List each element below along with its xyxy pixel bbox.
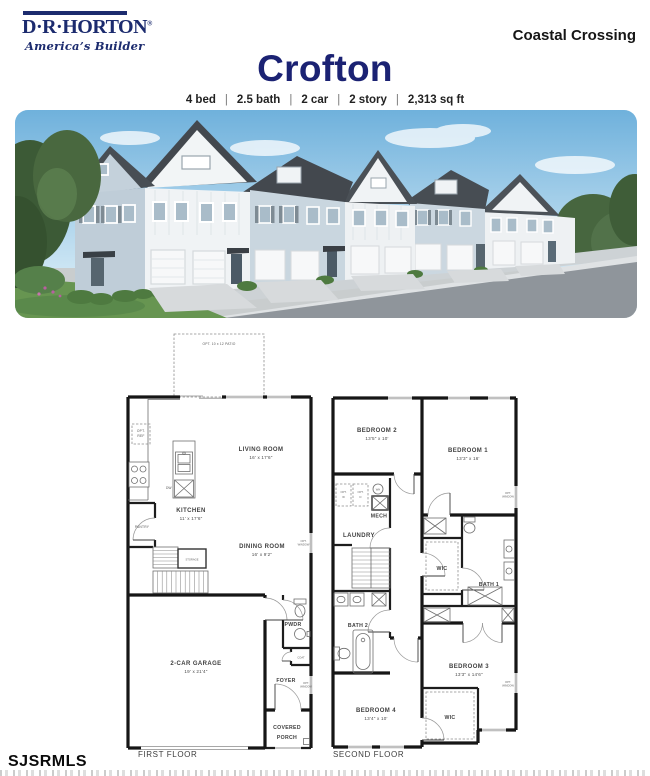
kitchen-island — [173, 441, 195, 498]
mech-label: MECH — [371, 514, 387, 520]
flyer-page: D·R·HORTON® America’s Builder Coastal Cr… — [0, 0, 650, 776]
spec-separator: | — [289, 94, 292, 106]
opt-window-label-foyer: OPT. — [303, 681, 309, 685]
cropped-disclaimer-text — [0, 770, 650, 776]
first-floor-title: FIRST FLOOR — [138, 750, 197, 759]
pwdr-label: PWDR — [284, 622, 301, 628]
exterior-walls — [128, 397, 311, 748]
coat-label: COAT — [297, 656, 305, 660]
mls-watermark: SJSRMLS — [8, 753, 87, 771]
pantry-label: PANTRY — [135, 525, 150, 529]
svg-text:REF: REF — [137, 434, 144, 438]
wic-upper-label: WIC — [437, 566, 448, 572]
rendering-scene — [15, 110, 637, 318]
svg-text:WINDOW: WINDOW — [502, 495, 514, 499]
bedroom1-label: BEDROOM 1 — [448, 448, 488, 454]
garage-label: 2-CAR GARAGE — [170, 661, 221, 667]
svg-text:D: D — [360, 495, 362, 499]
bedroom3-dims: 13'3" x 14'6" — [455, 672, 483, 677]
covered-porch-label: COVERED — [273, 725, 301, 731]
spec-separator: | — [396, 94, 399, 106]
opt-ref-label: OPT. — [137, 429, 145, 433]
bedroom2-dims: 13'5" x 10' — [365, 436, 388, 441]
kitchen-label: KITCHEN — [176, 508, 205, 514]
opt-window-label-bed3: OPT. — [505, 680, 511, 684]
opt-window-label-bed1: OPT. — [505, 491, 511, 495]
bedroom4-label: BEDROOM 4 — [356, 708, 396, 714]
dining-room-label: DINING ROOM — [239, 544, 285, 550]
logo-bar — [23, 11, 127, 15]
drhorton-logo: D·R·HORTON® America’s Builder — [22, 8, 152, 53]
svg-text:W: W — [342, 495, 345, 499]
bath2-label: BATH 2 — [348, 623, 368, 629]
bedroom4-dims: 13'4" x 10' — [364, 716, 387, 721]
spec-cars: 2 car — [301, 94, 328, 106]
stairs-2 — [352, 548, 390, 588]
porch-post — [304, 739, 310, 745]
bedroom3-label: BEDROOM 3 — [449, 664, 489, 670]
spec-stories: 2 story — [349, 94, 387, 106]
stairs: STORAGE — [153, 547, 208, 593]
second-floor-title: SECOND FLOOR — [333, 750, 404, 759]
living-room-dims: 16' x 17'6" — [249, 455, 272, 460]
wic-lower: WIC — [426, 692, 474, 739]
svg-text:WINDOW: WINDOW — [298, 543, 310, 547]
living-room-label: LIVING ROOM — [239, 447, 284, 453]
exterior-walls-2 — [333, 398, 516, 747]
first-floor-plan: OPT. 10 x 12 PATIO OPT. REF — [123, 328, 318, 760]
brand-name: D·R·HORTON — [22, 16, 147, 38]
kitchen-dims: 11' x 17'6" — [180, 516, 203, 521]
opt-washer-label: OPT. — [341, 490, 347, 494]
kitchen-fixtures: OPT. REF DW — [128, 400, 195, 501]
svg-text:WINDOW: WINDOW — [300, 685, 312, 689]
spec-beds: 4 bed — [186, 94, 216, 106]
laundry-label: LAUNDRY — [343, 533, 375, 539]
svg-text:PORCH: PORCH — [277, 735, 297, 741]
plan-title: Crofton — [0, 50, 650, 87]
wic-lower-label: WIC — [445, 715, 456, 721]
second-floor-plan: BEDROOM 2 13'5" x 10' BEDROOM 1 13'3" x … — [328, 388, 520, 760]
dw-label: DW — [166, 486, 172, 490]
powder-room: PWDR — [283, 595, 311, 648]
opt-dryer-label: OPT. — [358, 490, 364, 494]
bedroom2-label: BEDROOM 2 — [357, 428, 397, 434]
garage-dims: 19' x 21'4" — [184, 669, 207, 674]
bath2: BATH 2 — [334, 593, 386, 673]
storage-label: STORAGE — [185, 558, 198, 562]
opt-window-label: OPT. — [301, 539, 307, 543]
spec-separator: | — [225, 94, 228, 106]
pantry: PANTRY — [128, 503, 155, 547]
spec-line: 4 bed | 2.5 bath | 2 car | 2 story | 2,3… — [0, 94, 650, 106]
window-openings-2 — [348, 396, 518, 748]
svg-text:WINDOW: WINDOW — [502, 684, 514, 688]
dining-room-dims: 16' x 9'2" — [252, 552, 273, 557]
coat-closet: COAT — [282, 648, 311, 665]
spec-sqft: 2,313 sq ft — [408, 94, 464, 106]
community-name: Coastal Crossing — [513, 27, 636, 44]
bedroom1-dims: 13'3" x 16' — [456, 456, 479, 461]
spec-separator: | — [337, 94, 340, 106]
exterior-rendering-photo — [15, 110, 637, 318]
interior-walls-2 — [333, 398, 516, 747]
foyer-label: FOYER — [276, 678, 295, 684]
opt-patio-label: OPT. 10 x 12 PATIO — [203, 342, 236, 346]
wh-label: WH — [376, 488, 381, 492]
logo-brand-text: D·R·HORTON® — [22, 16, 152, 39]
registered-mark: ® — [147, 19, 152, 27]
spec-baths: 2.5 bath — [237, 94, 280, 106]
